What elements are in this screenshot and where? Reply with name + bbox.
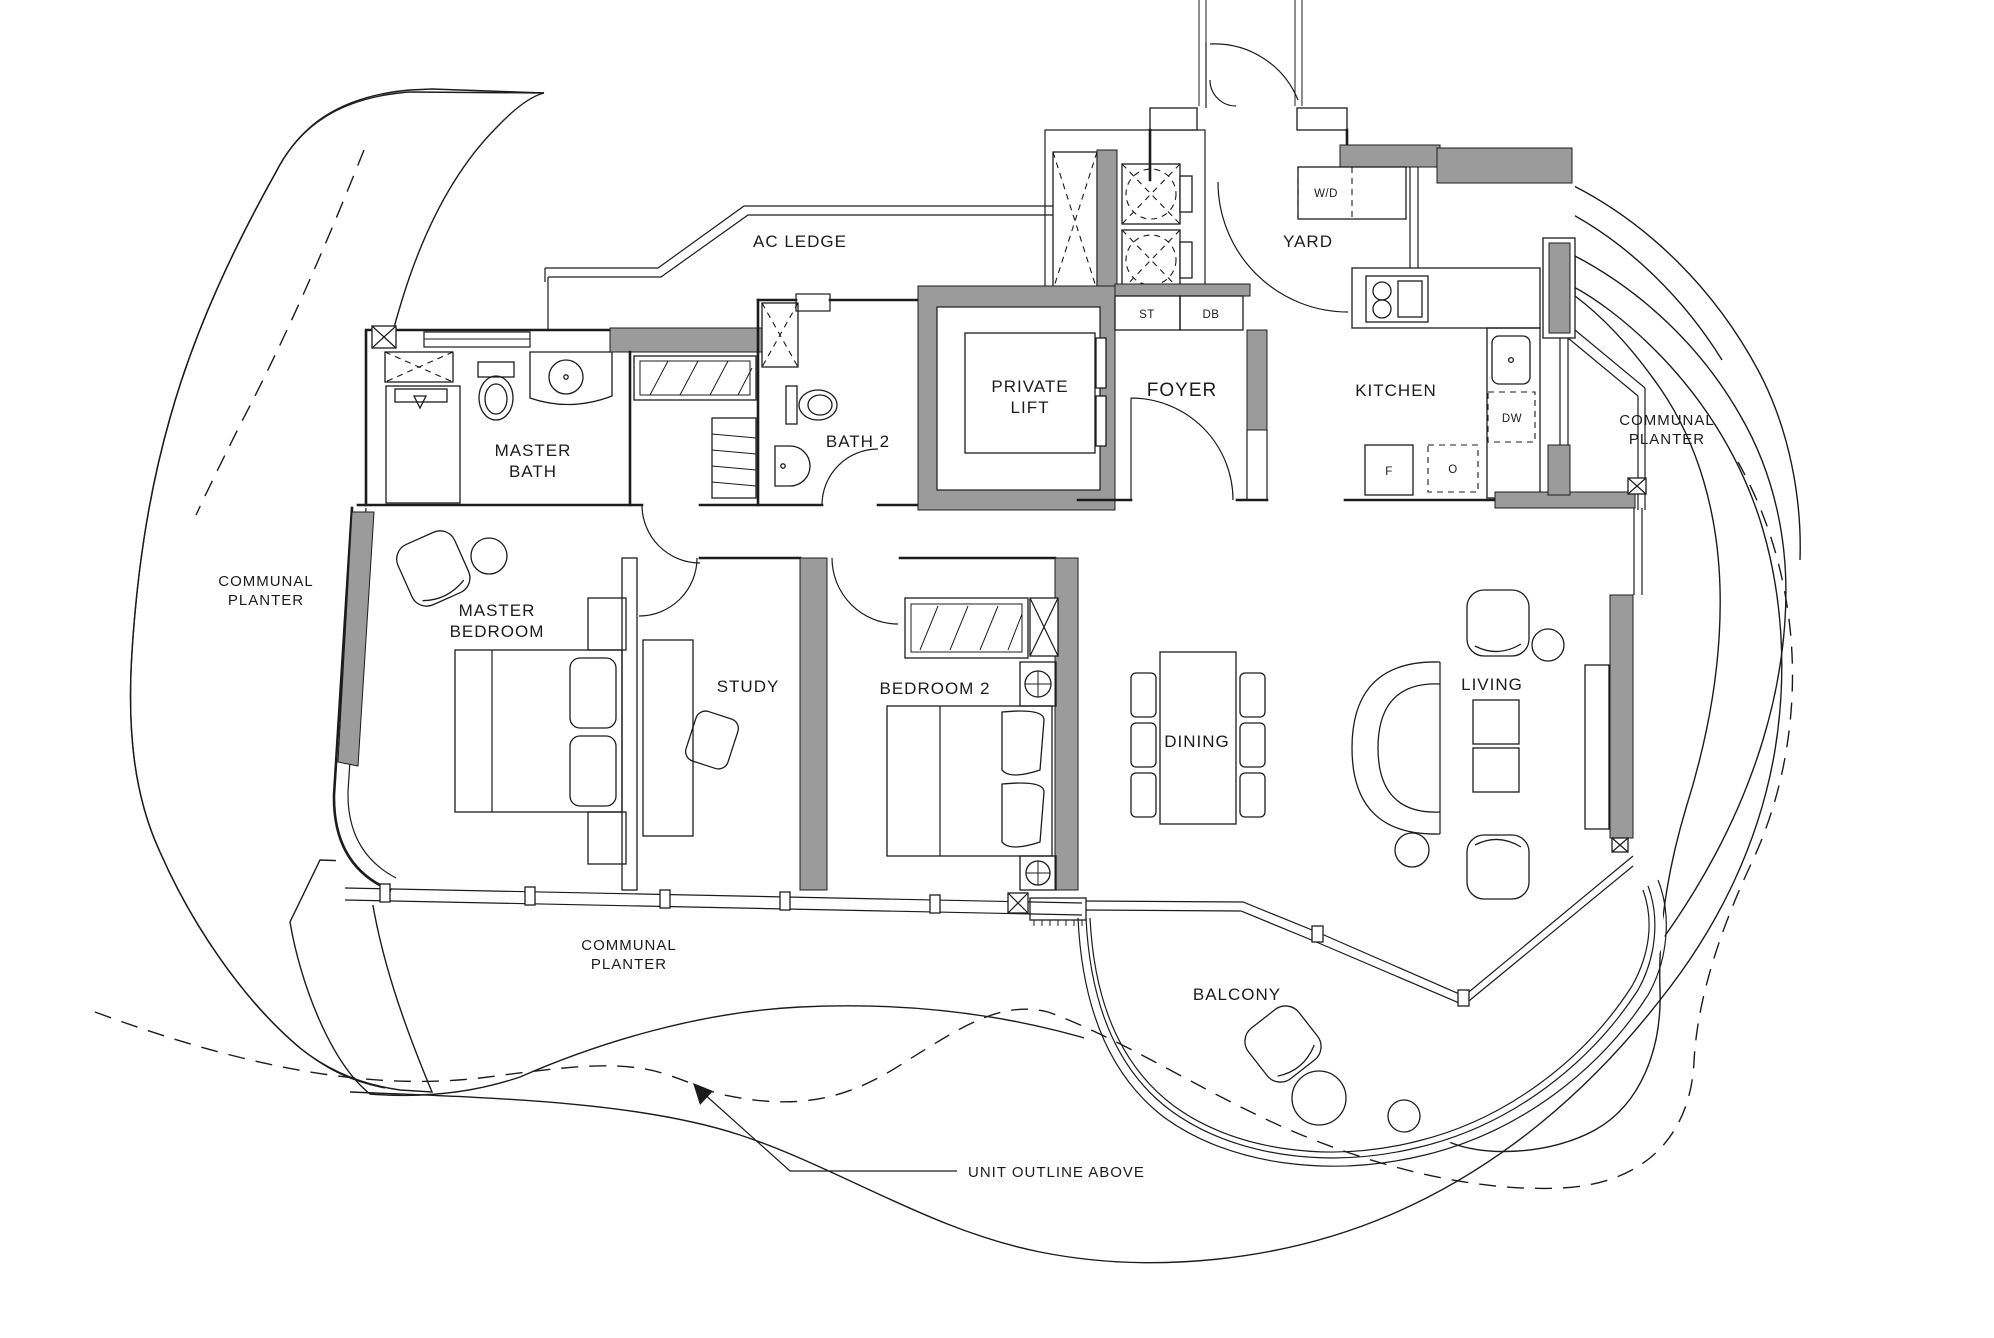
room-label-master-bath-1: MASTER (495, 441, 572, 460)
label-communal-planter-right-1: COMMUNAL (1619, 412, 1715, 429)
bath2-window (796, 294, 830, 311)
label-communal-planter-left-1: COMMUNAL (218, 573, 314, 590)
label-dw: DW (1502, 413, 1522, 425)
label-db: DB (1203, 309, 1220, 321)
room-label-master-bath-2: BATH (509, 462, 557, 481)
label-unit-outline-above: UNIT OUTLINE ABOVE (968, 1164, 1145, 1181)
label-fridge: F (1385, 466, 1393, 478)
room-label-living: LIVING (1461, 675, 1523, 694)
label-st: ST (1139, 309, 1155, 321)
room-label-yard: YARD (1283, 232, 1333, 251)
room-label-private-lift-1: PRIVATE (991, 377, 1068, 396)
label-communal-planter-left-2: PLANTER (228, 592, 304, 609)
unit-floor (330, 126, 1665, 1168)
label-oven: O (1448, 464, 1457, 476)
wall-master-study (622, 558, 637, 890)
label-communal-planter-right-2: PLANTER (1629, 431, 1705, 448)
room-label-bedroom2: BEDROOM 2 (879, 679, 990, 698)
label-communal-planter-bottom-2: PLANTER (591, 956, 667, 973)
room-label-private-lift-2: LIFT (1011, 398, 1050, 417)
room-label-bath2: BATH 2 (826, 432, 890, 451)
room-label-foyer: FOYER (1147, 380, 1217, 401)
entry-door-arc (1210, 44, 1298, 100)
label-communal-planter-bottom-1: COMMUNAL (581, 937, 677, 954)
room-label-kitchen: KITCHEN (1355, 381, 1437, 400)
floor-plan-canvas: AC LEDGE YARD W/D PRIVATE LIFT FOYER ST … (0, 0, 1994, 1338)
entry-door-arc-small (1210, 80, 1236, 106)
room-label-dining: DINING (1164, 732, 1230, 751)
floor-plan: AC LEDGE YARD W/D PRIVATE LIFT FOYER ST … (0, 0, 1994, 1338)
label-washer-dryer: W/D (1314, 188, 1338, 200)
room-label-ac-ledge: AC LEDGE (753, 232, 847, 251)
room-label-study: STUDY (717, 677, 780, 696)
room-label-master-bedroom-2: BEDROOM (450, 622, 545, 641)
room-label-master-bedroom-1: MASTER (459, 601, 536, 620)
room-label-balcony: BALCONY (1193, 985, 1281, 1004)
